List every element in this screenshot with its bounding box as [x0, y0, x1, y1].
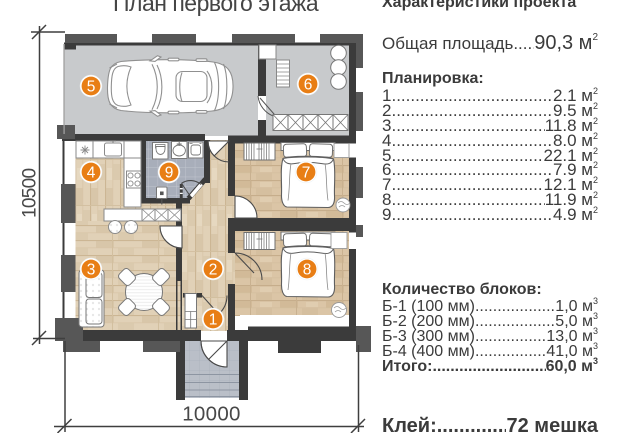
- svg-text:1: 1: [209, 312, 218, 329]
- svg-text:8: 8: [303, 262, 312, 279]
- svg-text:6: 6: [304, 77, 313, 94]
- svg-text:4: 4: [87, 165, 96, 182]
- svg-text:10500: 10500: [20, 169, 41, 218]
- svg-text:10000: 10000: [182, 403, 241, 426]
- svg-text:3: 3: [87, 262, 96, 279]
- svg-text:5: 5: [87, 79, 96, 96]
- svg-text:7: 7: [302, 165, 311, 182]
- svg-text:9: 9: [165, 165, 174, 182]
- svg-text:2: 2: [209, 262, 218, 279]
